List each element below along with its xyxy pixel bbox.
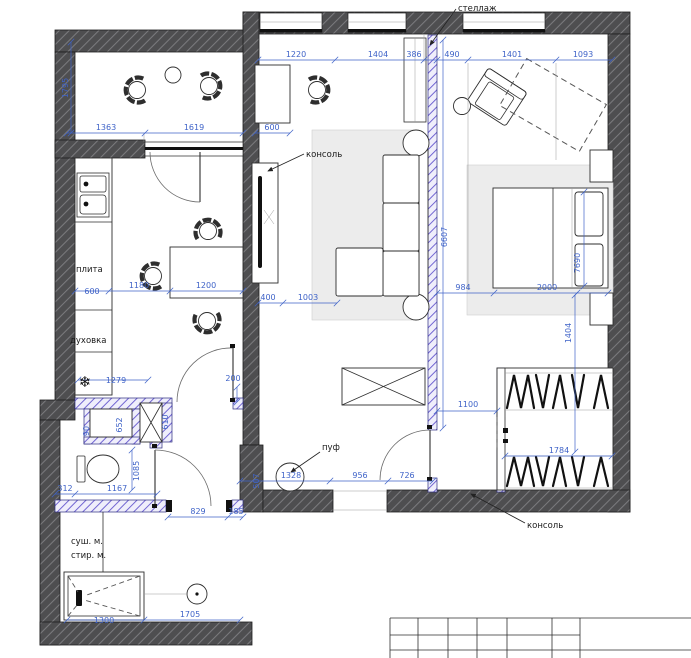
- dim-laundry-1300: 1300: [94, 616, 114, 625]
- balcony-side-table: [165, 67, 181, 83]
- dim-top-1220: 1220: [286, 50, 306, 59]
- bedroom-furniture: [454, 59, 614, 490]
- floor-drain: [144, 584, 207, 604]
- window-bedroom: [463, 13, 545, 33]
- dimensions: 1220 1404 386 490 1401 1093 1363 1619 17…: [52, 37, 615, 625]
- dim-wc-1167: 1167: [107, 484, 127, 493]
- sofa-chaise: [336, 248, 383, 296]
- dim-hall-185: 185: [228, 507, 243, 516]
- dim-bed-7690: 7690: [573, 253, 582, 273]
- door-post-left: [166, 500, 172, 512]
- dim-partition-6607: 6607: [440, 227, 449, 247]
- pillow-top: [575, 192, 603, 236]
- wardrobe: [497, 368, 613, 490]
- dim-hall-956: 956: [352, 471, 367, 480]
- kitchen-furniture: [75, 158, 243, 395]
- living-room-furniture: [252, 38, 429, 405]
- dim-balcony-1363: 1363: [96, 123, 116, 132]
- dining-chair-top: [196, 220, 221, 240]
- dim-hall-1328: 1328: [281, 471, 301, 480]
- dim-wardrobe-1100: 1100: [458, 400, 478, 409]
- balcony-furniture: [126, 67, 221, 103]
- dining-table: [170, 247, 243, 298]
- dim-top-386: 386: [406, 50, 421, 59]
- niche-bottom-wall: [84, 437, 140, 444]
- shower-tray: [64, 572, 144, 620]
- desk-chair: [309, 78, 329, 103]
- dining-chair-bottom: [195, 313, 220, 333]
- bed: [493, 188, 608, 288]
- kitchen-counter: [75, 158, 112, 395]
- nightstand-bottom: [590, 293, 613, 325]
- tv-console: [252, 163, 278, 283]
- wc-bottom-wall: [55, 500, 166, 512]
- dim-top-1404: 1404: [368, 50, 388, 59]
- dim-kitchen-1180: 1180: [129, 281, 149, 290]
- dim-desk-600: 600: [264, 123, 279, 132]
- kitchen-door: [177, 344, 235, 402]
- fridge-snowflake-icon: ❄: [79, 373, 92, 391]
- balcony-kitchen-wall: [55, 140, 145, 158]
- oven-label: духовка: [70, 336, 107, 346]
- balcony-armchair-left: [126, 78, 146, 103]
- floor-plan-page: 1220 1404 386 490 1401 1093 1363 1619 17…: [0, 0, 691, 658]
- duct-shaft: [140, 403, 162, 442]
- console-bedroom-label: консоль: [527, 521, 563, 531]
- dim-balcony-1795: 1795: [61, 78, 70, 98]
- window-living-2: [348, 13, 406, 33]
- dim-bed-984: 984: [455, 283, 470, 292]
- dim-wc-312: 312: [57, 484, 72, 493]
- dim-laundry-1705: 1705: [180, 610, 200, 619]
- left-wall-lower: [40, 420, 60, 645]
- bedroom-armchair: [467, 68, 527, 127]
- balcony-armchair-right: [201, 74, 221, 99]
- entrance-opening: [333, 491, 387, 510]
- shelf-label: стеллаж: [458, 4, 497, 14]
- dryer-label: суш. м.: [71, 537, 103, 547]
- south-mid-wall: [263, 490, 333, 512]
- dim-wardrobe-1784: 1784: [549, 446, 569, 455]
- dim-wc-1085: 1085: [132, 461, 141, 481]
- south-east-wall: [387, 490, 630, 512]
- console-living-label: консоль: [306, 150, 342, 160]
- title-block-grid: [390, 618, 691, 658]
- wc-niche: [90, 409, 132, 437]
- dim-fridge-1279: 1279: [106, 376, 126, 385]
- wardrobe-handle: [503, 428, 508, 433]
- living-bedroom-partition: [428, 35, 437, 430]
- floor-plan-canvas: 1220 1404 386 490 1401 1093 1363 1619 17…: [0, 0, 691, 658]
- balcony-door: [150, 152, 200, 202]
- window-living-1: [260, 13, 322, 33]
- dim-living-1003: 1003: [298, 293, 318, 302]
- nightstand-top: [590, 150, 613, 182]
- dim-bedroom-1404: 1404: [564, 323, 573, 343]
- storage-box: [342, 368, 425, 405]
- pouf-label: пуф: [322, 443, 340, 453]
- dim-hall-507: 507: [252, 473, 261, 488]
- dim-balcony-1619: 1619: [184, 123, 204, 132]
- dim-kitchen-600: 600: [84, 287, 99, 296]
- dim-wc-610: 610: [161, 414, 170, 429]
- dim-top-1401: 1401: [502, 50, 522, 59]
- dim-kitchen-200: 200: [225, 374, 240, 383]
- dim-living-400: 400: [260, 293, 275, 302]
- balcony-top-wall: [55, 30, 245, 52]
- left-wall-upper: [55, 52, 75, 408]
- dim-wc-90: 90: [82, 426, 91, 436]
- stove-label: плита: [76, 265, 103, 275]
- desk: [255, 65, 290, 123]
- left-wall-jog: [40, 400, 75, 420]
- dim-bed-2000: 2000: [537, 283, 557, 292]
- dim-top-490: 490: [444, 50, 459, 59]
- dim-kitchen-1200: 1200: [196, 281, 216, 290]
- washer-label: стир. м.: [71, 551, 106, 561]
- dim-wc-652: 652: [115, 417, 124, 432]
- laundry-fixtures: [64, 512, 207, 620]
- wc-door: [152, 444, 211, 508]
- dim-hall-726: 726: [399, 471, 414, 480]
- dim-hall-829: 829: [190, 507, 205, 516]
- laundry-bottom-wall: [40, 622, 252, 645]
- window-balcony-kitchen: [145, 142, 243, 156]
- exterior-walls: [40, 12, 630, 645]
- toilet: [77, 455, 119, 483]
- dim-top-1093: 1093: [573, 50, 593, 59]
